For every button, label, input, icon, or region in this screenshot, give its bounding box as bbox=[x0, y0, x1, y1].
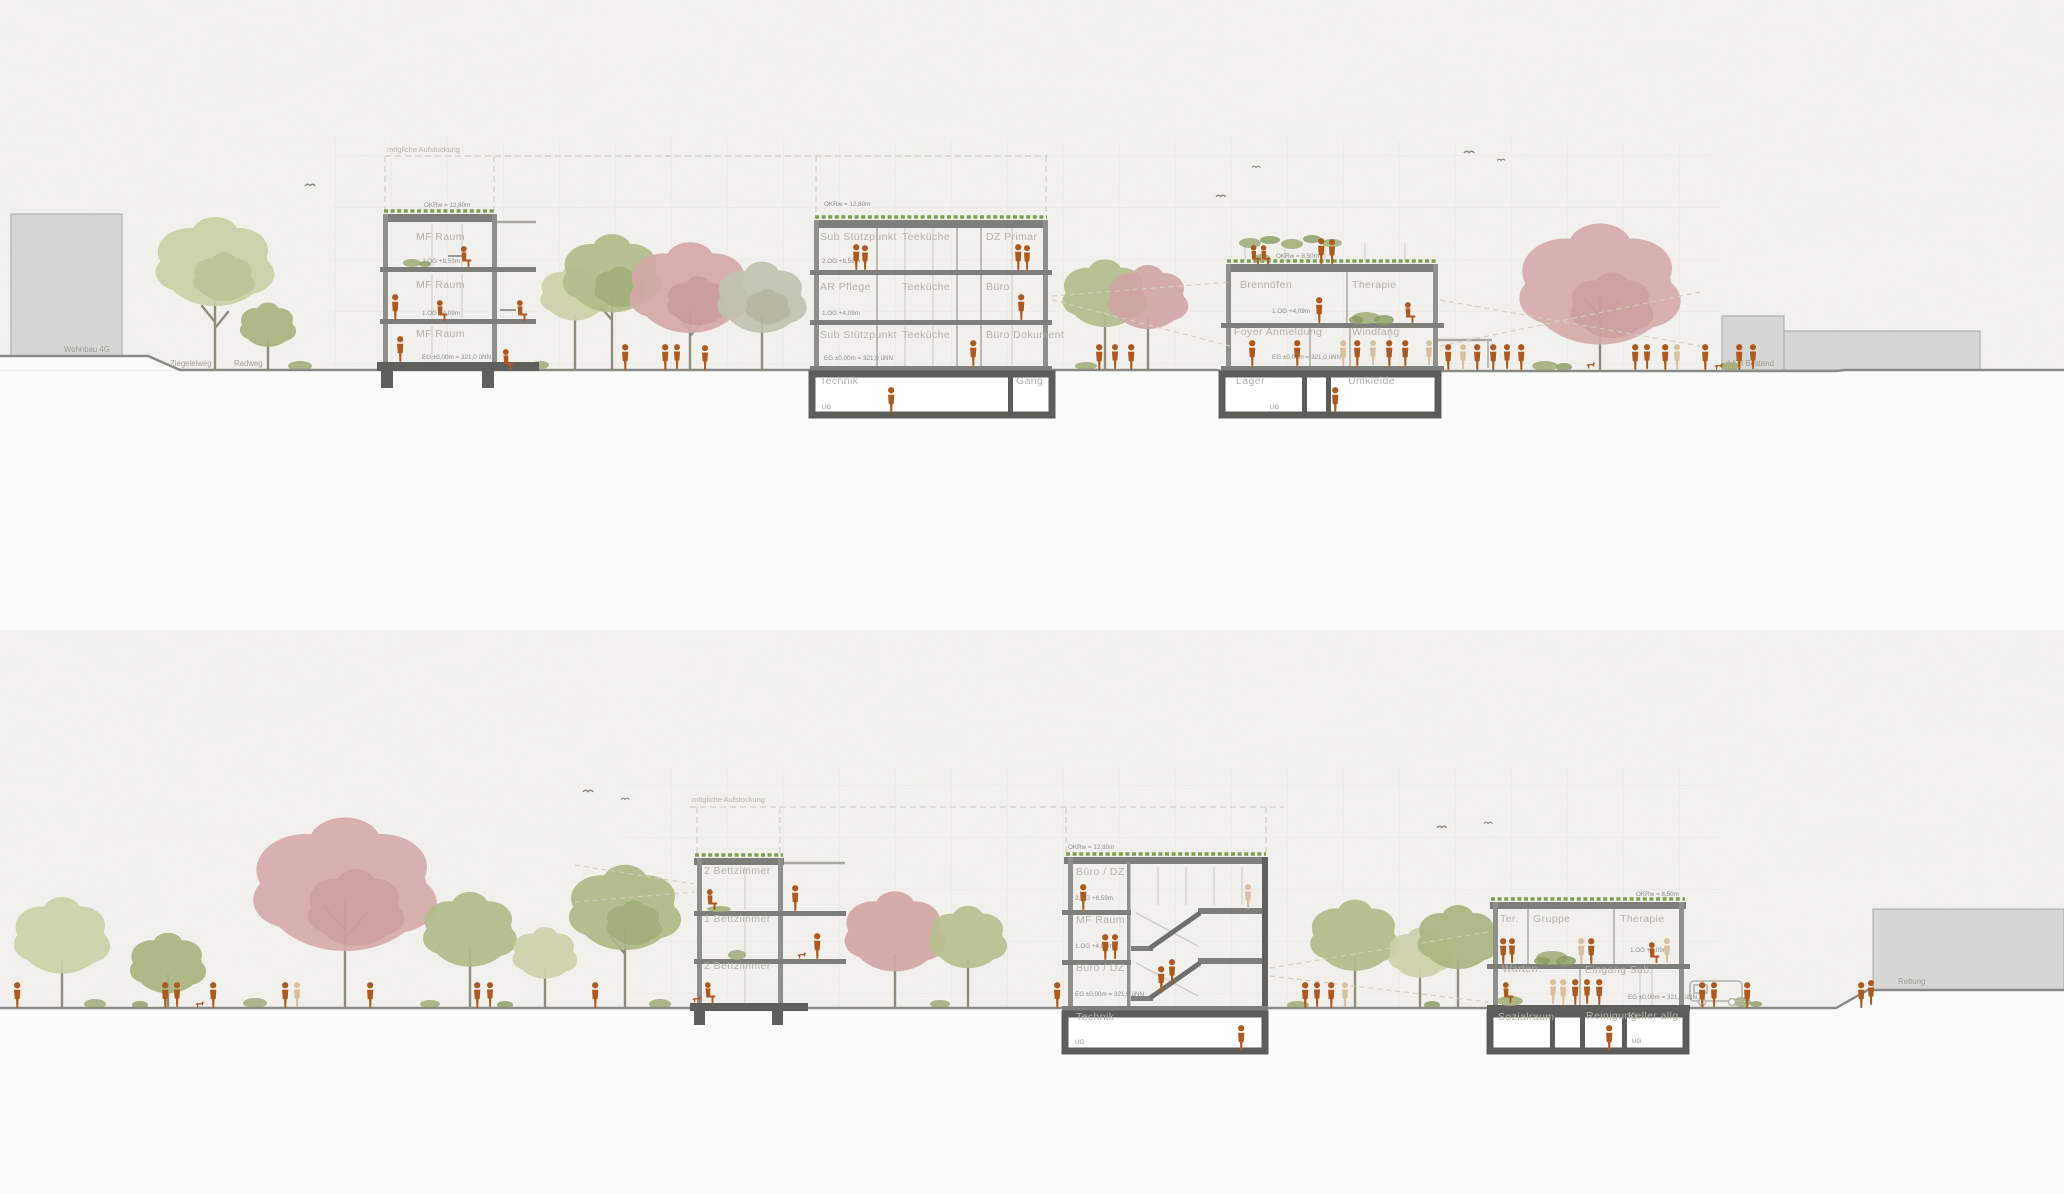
room-label: Büro / DZ bbox=[1076, 866, 1125, 878]
level-elevation: EG ±0,00m = 321,0 üNN bbox=[422, 354, 492, 361]
room-label: Windfang bbox=[1352, 326, 1400, 338]
room-label: Keller allg. bbox=[1628, 1010, 1682, 1022]
room-label: MF Raum bbox=[416, 328, 465, 340]
room-label: Sub Stützpunkt bbox=[820, 231, 897, 243]
room-label: Teeküche bbox=[902, 281, 950, 293]
roof-elevation: OKRw = 12,80m bbox=[1068, 844, 1114, 851]
context-left-label: Wohnbau 4G bbox=[64, 345, 110, 354]
roof-elevation: OKRw = 12,80m bbox=[424, 202, 470, 209]
room-label: Foyer Anmeldung bbox=[1234, 326, 1322, 338]
room-label: AR Pflege bbox=[820, 281, 871, 293]
level-elevation: EG ±0,00m = 321,0 üNN bbox=[1628, 994, 1698, 1001]
room-label: Büro / DZ bbox=[1076, 962, 1125, 974]
room-label: Büro bbox=[986, 281, 1010, 293]
level-elevation: UG bbox=[1632, 1038, 1642, 1045]
level-elevation: EG ±0,00m = 321,0 üNN bbox=[1272, 354, 1342, 361]
roof-elevation: OKRw = 12,80m bbox=[824, 201, 870, 208]
room-label: Umkleide bbox=[1348, 375, 1395, 387]
room-label: Eingang Sub. bbox=[1585, 964, 1653, 976]
room-label: Technik bbox=[1076, 1011, 1115, 1023]
room-label: MF Raum bbox=[416, 231, 465, 243]
level-elevation: EG ±0,00m = 321,0 üNN bbox=[824, 355, 894, 362]
street-label-ziegeleiweg: Ziegeleiweg bbox=[170, 359, 212, 368]
section-drawing-bottom: Rettung bbox=[0, 630, 2064, 1194]
room-label: Sozialraum bbox=[1498, 1011, 1555, 1023]
room-label: Gang bbox=[1016, 375, 1043, 387]
level-elevation: 1.OG +4,09m bbox=[1272, 308, 1310, 315]
roof-elevation: OKRw = 8,50m bbox=[1276, 253, 1319, 260]
room-label: Therapie bbox=[1620, 913, 1665, 925]
level-elevation: EG ±0,00m = 321,0 üNN bbox=[1075, 991, 1145, 998]
room-label: Technik bbox=[820, 375, 859, 387]
room-label: 1 Bettzimmer bbox=[704, 913, 771, 925]
site-section-sheet: Wohnbau 4G LKH Bestand bbox=[0, 0, 2064, 1194]
context-building-right: Rettung bbox=[1873, 909, 2064, 990]
level-elevation: 1.OG +4,09m bbox=[822, 310, 860, 317]
room-label: Gruppe bbox=[1533, 913, 1570, 925]
room-label: Brennöfen bbox=[1240, 279, 1292, 291]
room-label: Warten bbox=[1502, 963, 1538, 975]
room-label: Lager bbox=[1236, 375, 1265, 387]
section-drawing-top: Wohnbau 4G LKH Bestand bbox=[0, 0, 2064, 452]
room-label: MF Raum bbox=[416, 279, 465, 291]
room-label: Büro Dokument bbox=[986, 329, 1064, 341]
aufstockung-label: mögliche Aufstockung bbox=[387, 145, 460, 154]
level-elevation: 1.OG +4,09m bbox=[1630, 947, 1668, 954]
room-label: Teeküche bbox=[902, 329, 950, 341]
level-elevation: UG bbox=[822, 404, 832, 411]
room-label: 2 Bettzimmer bbox=[704, 865, 771, 877]
room-label: 2 Bettzimmer bbox=[704, 960, 771, 972]
room-label: Ter. bbox=[1500, 913, 1519, 925]
roof-elevation: OKRw = 8,50m bbox=[1636, 891, 1679, 898]
room-label: Therapie bbox=[1352, 279, 1397, 291]
room-label: Sub Stützpunkt bbox=[820, 329, 897, 341]
room-label: MF Raum bbox=[1076, 914, 1125, 926]
aufstockung-label: mögliche Aufstockung bbox=[692, 795, 765, 804]
context-building-left: Wohnbau 4G bbox=[11, 214, 122, 356]
level-elevation: UG bbox=[1270, 404, 1280, 411]
context-right-label: Rettung bbox=[1898, 977, 1925, 986]
level-elevation: UG bbox=[1075, 1039, 1085, 1046]
room-label: Teeküche bbox=[902, 231, 950, 243]
street-label-radweg: Radweg bbox=[234, 359, 263, 368]
room-label: DZ Primar bbox=[986, 231, 1038, 243]
